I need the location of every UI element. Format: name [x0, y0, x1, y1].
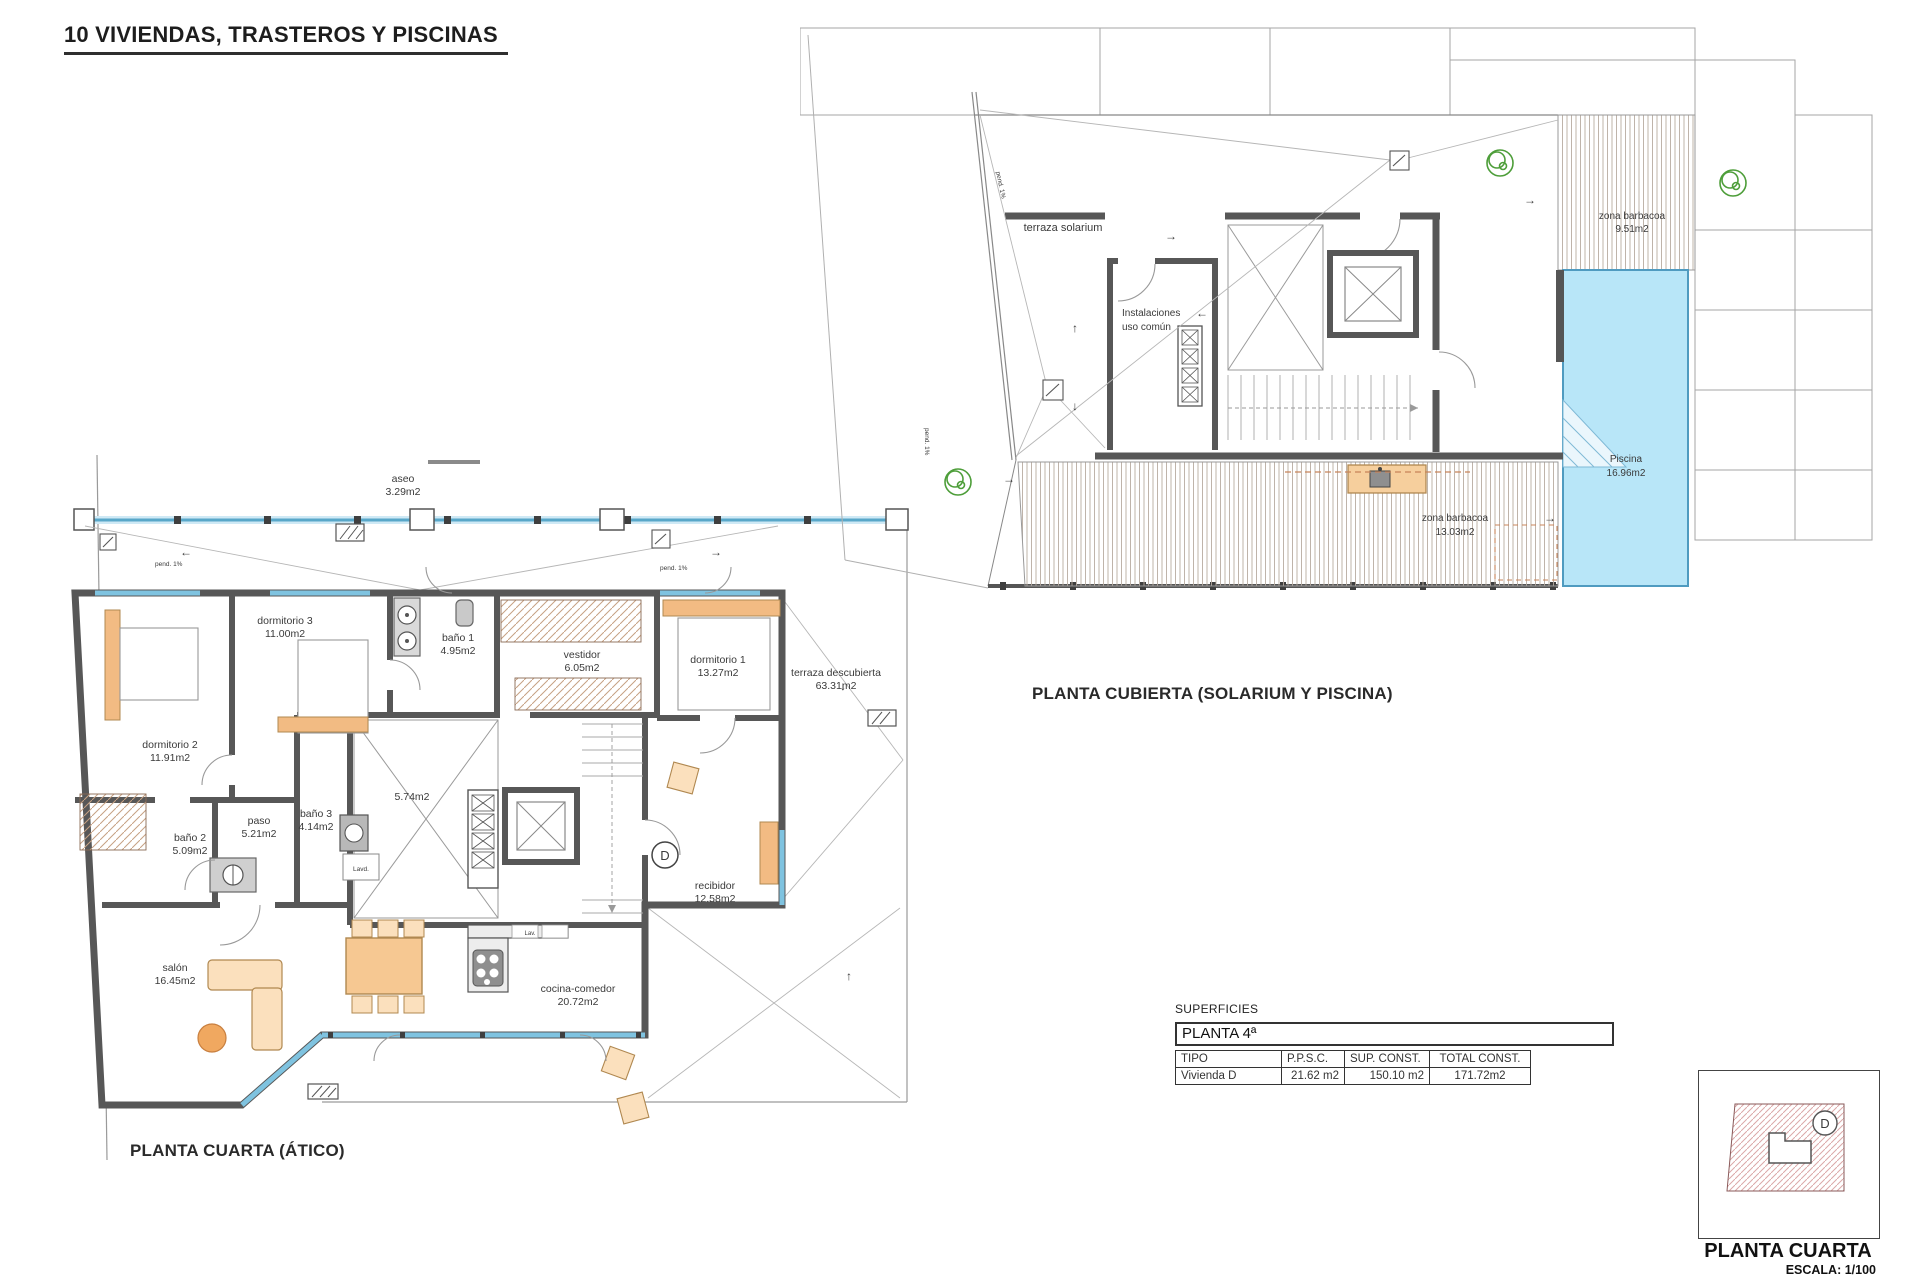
svg-text:5.21m2: 5.21m2	[241, 828, 276, 840]
table-header-row: TIPO P.P.S.C. SUP. CONST. TOTAL CONST.	[1176, 1051, 1531, 1068]
arrow-right-icon: →	[1003, 472, 1015, 486]
barbacoa-counter	[1348, 465, 1426, 493]
shaft-icon	[1178, 326, 1202, 406]
svg-text:4.95m2: 4.95m2	[440, 645, 475, 657]
label-piscina: Piscina	[1610, 454, 1643, 465]
deck-barbacoa-top	[1558, 115, 1695, 270]
svg-text:4.14m2: 4.14m2	[298, 821, 333, 833]
svg-text:5.09m2: 5.09m2	[172, 845, 207, 857]
room-label-dormitorio2: dormitorio 2	[142, 739, 198, 751]
label-lav: Lav.	[525, 931, 536, 937]
svg-text:D: D	[1820, 1116, 1829, 1131]
slope-label: pend. 1%	[994, 171, 1007, 200]
svg-text:16.96m2: 16.96m2	[1607, 468, 1646, 479]
room-label-bano1: baño 1	[442, 632, 474, 644]
cell-ppsc: 21.62 m2	[1282, 1068, 1345, 1085]
label-instalaciones: Instalaciones	[1122, 308, 1180, 319]
room-label-dormitorio3: dormitorio 3	[257, 615, 313, 627]
core-door-arcs	[1118, 219, 1475, 388]
svg-text:12.58m2: 12.58m2	[695, 893, 736, 905]
svg-text:11.91m2: 11.91m2	[150, 752, 190, 764]
core-walls	[1005, 216, 1563, 456]
arrow-left-icon: ←	[1196, 306, 1208, 320]
room-label-bano2: baño 2	[174, 832, 206, 844]
col-tipo: TIPO	[1176, 1051, 1282, 1068]
svg-text:6.05m2: 6.05m2	[564, 662, 599, 674]
cell-total: 171.72m2	[1430, 1068, 1531, 1085]
cell-vivienda: Vivienda D	[1176, 1068, 1282, 1085]
side-table	[198, 1024, 226, 1052]
floorplan-atico: ← → ↓ ↑ pend. 1% pend. 1%	[60, 360, 920, 1170]
keyplan-drawing: D	[1699, 1071, 1876, 1235]
arrow-right-icon: →	[1544, 511, 1556, 525]
room-label-salon: salón	[162, 962, 187, 974]
arrow-left-icon: ←	[180, 545, 192, 559]
keyplan-caption: PLANTA CUARTA	[1698, 1240, 1878, 1263]
caption-planta-cuarta: PLANTA CUARTA (ÁTICO)	[130, 1141, 345, 1161]
planter	[760, 822, 778, 884]
caption-planta-cubierta: PLANTA CUBIERTA (SOLARIUM Y PISCINA)	[1032, 684, 1393, 704]
room-label-vestidor: vestidor	[564, 649, 601, 661]
room-label-aseo: aseo	[392, 473, 415, 485]
roof-stair-core	[1228, 225, 1418, 440]
svg-text:3.29m2: 3.29m2	[385, 486, 420, 498]
slope-label: pend. 1%	[660, 565, 688, 572]
surfaces-table-block: SUPERFICIES PLANTA 4ª TIPO P.P.S.C. SUP.…	[1175, 1002, 1614, 1085]
floor-label-box: PLANTA 4ª	[1175, 1022, 1614, 1046]
arrow-right-icon: →	[1524, 193, 1536, 207]
col-total-const: TOTAL CONST.	[1430, 1051, 1531, 1068]
room-label-paso: paso	[248, 815, 271, 827]
drawing-sheet: 10 VIVIENDAS, TRASTEROS Y PISCINAS	[0, 0, 1920, 1280]
label-lavadero: Lavd.	[353, 866, 369, 873]
pool	[1556, 270, 1688, 586]
col-sup-const: SUP. CONST.	[1345, 1051, 1430, 1068]
keyplan-scale: ESCALA: 1/100	[1698, 1263, 1876, 1277]
elevator-icon	[505, 790, 577, 862]
arrow-up-icon: ↑	[1072, 321, 1078, 335]
label-terraza-solarium: terraza solarium	[1024, 222, 1103, 234]
aseo-wall-mark	[428, 460, 480, 464]
keyplan: D	[1698, 1070, 1880, 1239]
elevator-icon	[1330, 253, 1416, 335]
label-barbacoa-top: zona barbacoa	[1599, 211, 1666, 222]
svg-text:uso común: uso común	[1122, 322, 1171, 333]
col-ppsc: P.P.S.C.	[1282, 1051, 1345, 1068]
arrow-up-icon: ↑	[846, 969, 852, 983]
svg-text:13.03m2: 13.03m2	[1436, 527, 1475, 538]
roofplan-cubierta: → ← → → ↑ ↓ → terraza solarium Instalaci…	[800, 20, 1890, 700]
svg-text:11.00m2: 11.00m2	[265, 628, 305, 640]
surfaces-label: SUPERFICIES	[1175, 1002, 1614, 1016]
svg-text:16.45m2: 16.45m2	[155, 975, 196, 987]
svg-text:20.72m2: 20.72m2	[558, 996, 599, 1008]
room-label-cocina: cocina-comedor	[541, 983, 616, 995]
deck-barbacoa-bottom	[1018, 462, 1558, 586]
shaft-icon	[468, 790, 498, 888]
table-row: Vivienda D 21.62 m2 150.10 m2 171.72m2	[1176, 1068, 1531, 1085]
room-label-recibidor: recibidor	[695, 880, 736, 892]
slope-label: pend. 1%	[923, 428, 930, 456]
dining-table	[346, 938, 422, 994]
slope-label: pend. 1%	[155, 561, 183, 568]
slope-lines	[980, 110, 1558, 458]
cell-sup: 150.10 m2	[1345, 1068, 1430, 1085]
room-label-patio: 5.74m2	[394, 791, 429, 803]
arrow-right-icon: →	[710, 545, 722, 559]
sheet-title: 10 VIVIENDAS, TRASTEROS Y PISCINAS	[64, 22, 508, 55]
surfaces-table: TIPO P.P.S.C. SUP. CONST. TOTAL CONST. V…	[1175, 1050, 1531, 1085]
svg-text:13.27m2: 13.27m2	[698, 667, 739, 679]
svg-text:D: D	[660, 848, 669, 863]
arrow-right-icon: →	[1165, 229, 1177, 243]
arrow-down-icon: ↓	[1072, 399, 1078, 413]
svg-text:9.51m2: 9.51m2	[1615, 224, 1649, 235]
room-label-dormitorio1: dormitorio 1	[690, 654, 746, 666]
unit-badge: D	[652, 842, 678, 868]
room-label-bano3: baño 3	[300, 808, 332, 820]
label-barbacoa-bottom: zona barbacoa	[1422, 513, 1489, 524]
